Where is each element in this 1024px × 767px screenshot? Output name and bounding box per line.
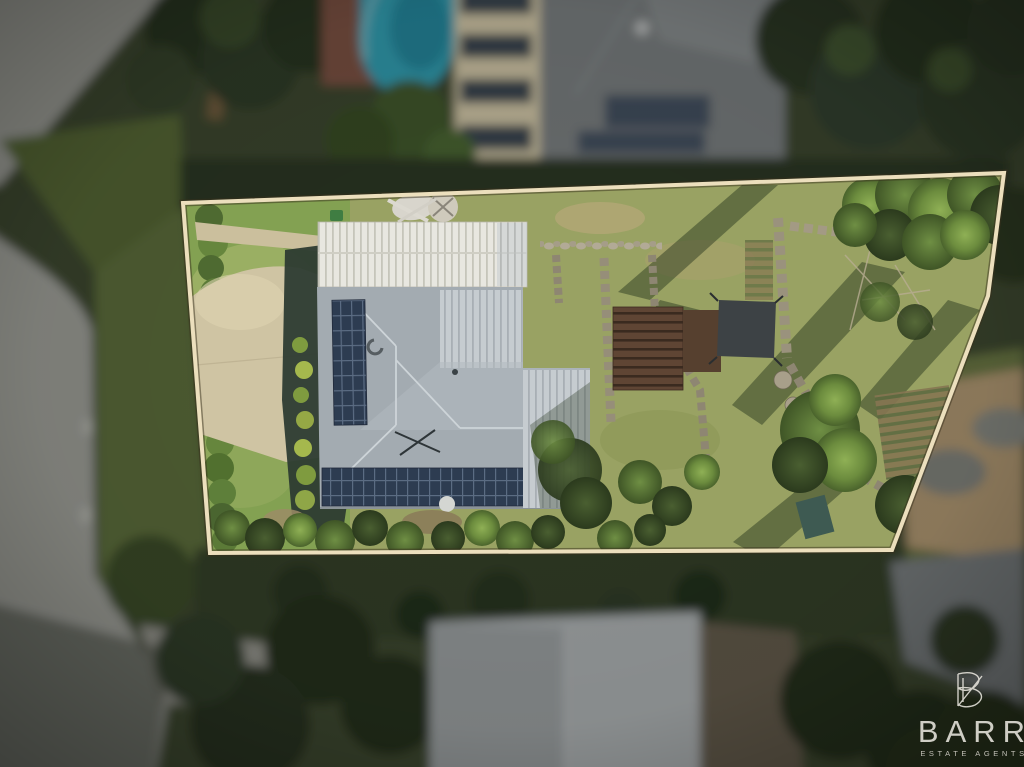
satellite-dish <box>439 496 455 512</box>
wheelie-bin <box>330 210 343 221</box>
deck-landing <box>683 310 721 372</box>
solar-array-left <box>332 300 367 426</box>
watermark-brand: BARR <box>918 714 1024 749</box>
roof-upper-right-panel <box>440 290 523 368</box>
aerial-photo-svg: BARR ESTATE AGENTS <box>0 0 1024 767</box>
timber-deck-steps <box>613 307 683 390</box>
shade-sail <box>717 300 776 358</box>
carport-roof <box>318 222 527 287</box>
solar-array-bottom <box>322 468 530 506</box>
watermark-tagline: ESTATE AGENTS <box>920 749 1024 758</box>
carport <box>318 222 527 287</box>
property <box>175 160 1024 565</box>
aerial-photo: BARR ESTATE AGENTS <box>0 0 1024 767</box>
garden-bed <box>745 240 773 300</box>
